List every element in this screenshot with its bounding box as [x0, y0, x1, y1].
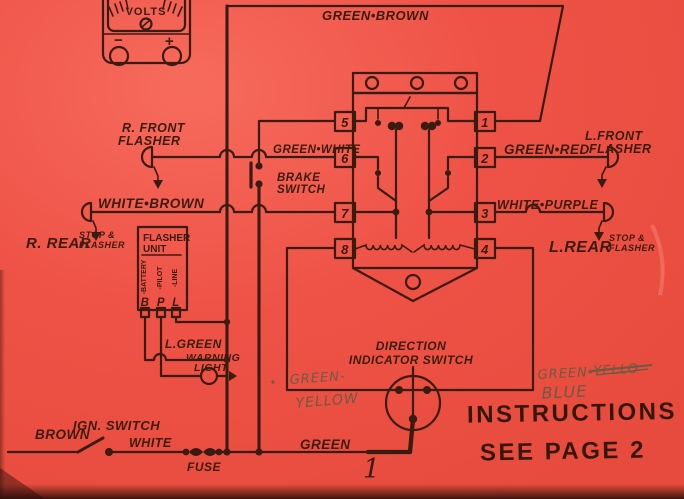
r-rear-small-2: FLASHER — [79, 240, 125, 250]
handwritten-right-blue: BLUE — [541, 381, 588, 402]
fuse-end-dot — [183, 449, 190, 456]
terminal-number: 6 — [341, 151, 349, 166]
terminal-number: 1 — [481, 115, 489, 130]
flasher-terminal-pilot-label: -PILOT — [157, 266, 164, 290]
relay-contact-dot — [445, 170, 451, 176]
r-front-label-2: FLASHER — [118, 134, 181, 148]
handwritten-right-green: GREEN- — [537, 365, 594, 383]
terminal-number: 3 — [481, 206, 489, 221]
switch-contact-dot — [395, 386, 403, 394]
direction-switch-label-1: DIRECTION — [376, 339, 447, 353]
pencil-dot — [271, 380, 274, 383]
junction-dot — [255, 448, 262, 455]
instructions-line-1: INSTRUCTIONS — [467, 398, 677, 429]
l-rear-label: L.REAR — [549, 239, 612, 256]
ignition-switch-label: IGN. SWITCH — [73, 418, 160, 433]
ignition-switch-contact-dot — [105, 448, 113, 456]
page-marker: 1 — [363, 454, 380, 485]
edge-shadow-bottom — [0, 484, 684, 499]
fuse: FUSE — [183, 448, 223, 474]
l-rear-small-2: FLASHER — [609, 243, 655, 253]
flasher-terminal-line-label: -LINE — [172, 269, 179, 288]
terminal-number: 4 — [480, 242, 489, 257]
brake-switch-contact-dot — [255, 162, 262, 169]
terminal-number: 2 — [480, 151, 489, 166]
fuse-label: FUSE — [187, 460, 222, 474]
brake-switch-contact-dot — [255, 180, 262, 187]
flasher-terminal-battery-label: -BATTERY — [141, 259, 148, 294]
direction-switch-label-2: INDICATOR SWITCH — [349, 353, 473, 367]
fuse-end-dot — [216, 449, 223, 456]
flasher-unit-title-2: UNIT — [143, 244, 166, 255]
brake-switch-label-2: SWITCH — [277, 184, 326, 196]
r-rear-small-1: STOP & — [79, 230, 115, 240]
green-label: GREEN — [300, 437, 351, 452]
terminal-number: 8 — [341, 242, 349, 257]
wiring-diagram-page: VOLTS − + — [0, 0, 684, 499]
switch-contact-dot — [423, 386, 431, 394]
r-front-label-1: R. FRONT — [122, 121, 186, 135]
brake-switch-label-1: BRAKE — [277, 172, 320, 184]
white-label: WHITE — [129, 436, 172, 450]
white-purple-label: WHITE•PURPLE — [497, 198, 599, 212]
relay-junction-dot — [426, 209, 433, 216]
l-green-label: L.GREEN — [165, 337, 222, 351]
flasher-unit-title-1: FLASHER — [143, 233, 191, 244]
l-front-label-2: FLASHER — [589, 142, 652, 156]
terminal-number: 7 — [341, 206, 349, 221]
green-brown-label: GREEN•BROWN — [322, 8, 429, 23]
relay-junction-dot — [393, 209, 400, 216]
instructions-line-2: SEE PAGE 2 — [480, 437, 646, 467]
relay-contact-dot — [375, 170, 381, 176]
relay-contact-dot — [375, 120, 381, 126]
white-brown-label: WHITE•BROWN — [98, 196, 204, 211]
green-red-label: GREEN•RED — [504, 142, 590, 157]
edge-shadow-left — [0, 270, 5, 499]
l-rear-small-1: STOP & — [609, 233, 645, 243]
l-front-label-1: L.FRONT — [585, 129, 644, 143]
voltmeter-label: VOLTS — [126, 6, 167, 18]
switch-feed-wire — [410, 419, 413, 452]
junction-dot — [223, 448, 230, 455]
junction-dot — [224, 319, 230, 325]
terminal-number: 5 — [341, 115, 349, 130]
